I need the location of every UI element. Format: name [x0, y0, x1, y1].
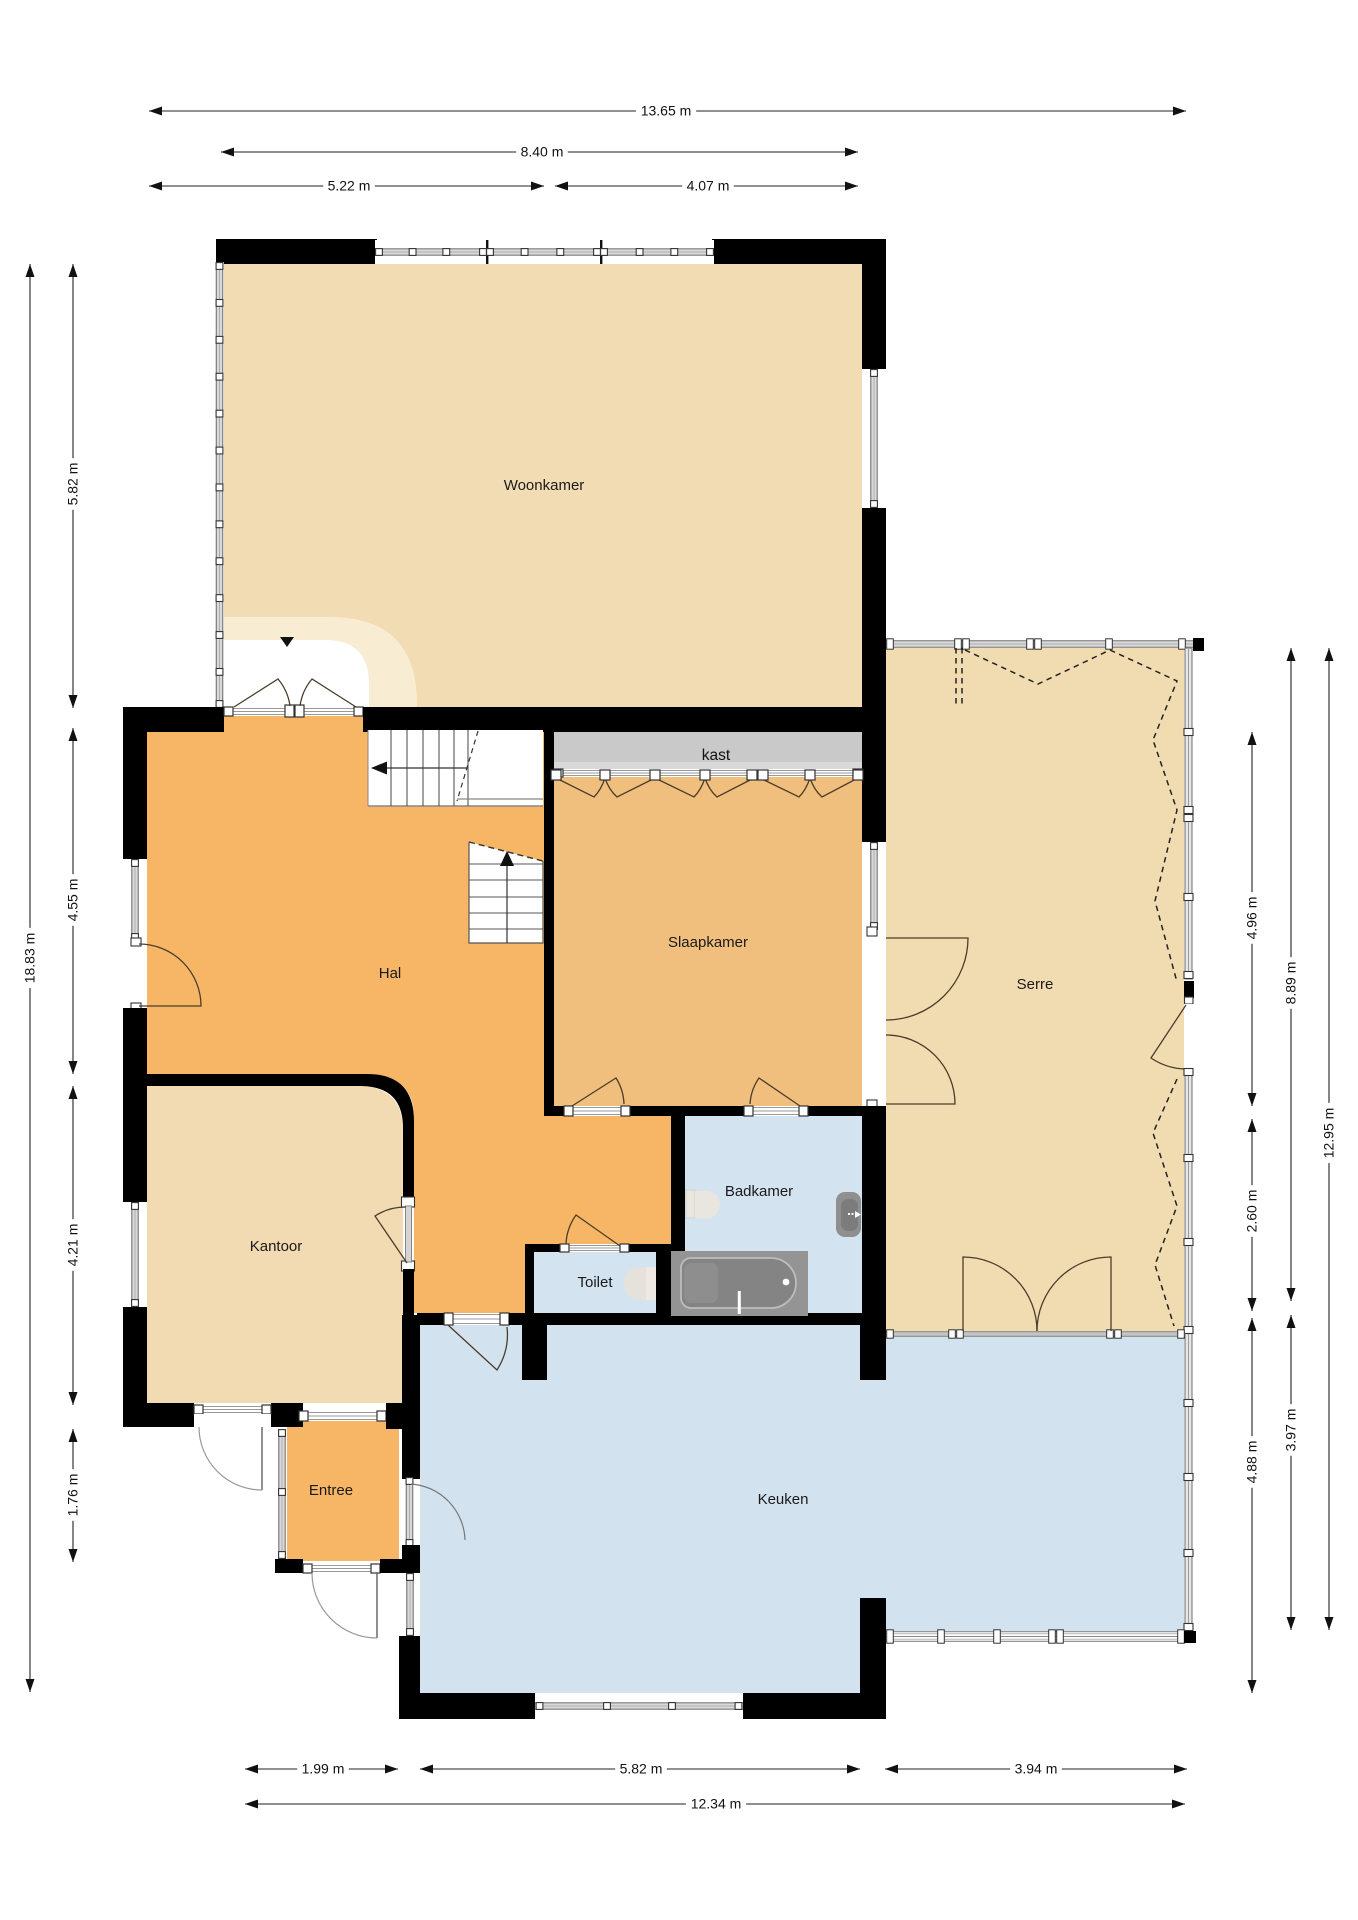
svg-text:18.83 m: 18.83 m — [22, 933, 38, 984]
svg-text:Hal: Hal — [379, 965, 402, 982]
svg-text:12.34 m: 12.34 m — [691, 1796, 742, 1812]
svg-text:Badkamer: Badkamer — [725, 1183, 793, 1200]
svg-text:2.60 m: 2.60 m — [1244, 1190, 1260, 1233]
svg-text:Woonkamer: Woonkamer — [504, 477, 585, 494]
svg-text:5.82 m: 5.82 m — [65, 463, 81, 506]
svg-text:Entree: Entree — [309, 1482, 353, 1499]
svg-text:Toilet: Toilet — [577, 1274, 613, 1291]
svg-text:12.95 m: 12.95 m — [1321, 1108, 1337, 1159]
svg-text:3.94 m: 3.94 m — [1015, 1761, 1058, 1777]
svg-text:1.76 m: 1.76 m — [65, 1474, 81, 1517]
svg-text:4.88 m: 4.88 m — [1244, 1441, 1260, 1484]
svg-text:Slaapkamer: Slaapkamer — [668, 934, 748, 951]
svg-text:4.55 m: 4.55 m — [65, 879, 81, 922]
svg-text:4.21 m: 4.21 m — [65, 1224, 81, 1267]
svg-text:8.89 m: 8.89 m — [1283, 962, 1299, 1005]
svg-text:5.82 m: 5.82 m — [620, 1761, 663, 1777]
svg-text:Serre: Serre — [1017, 976, 1054, 993]
svg-text:kast: kast — [702, 747, 731, 764]
svg-text:3.97 m: 3.97 m — [1283, 1409, 1299, 1452]
svg-text:Keuken: Keuken — [758, 1491, 809, 1508]
svg-text:13.65 m: 13.65 m — [641, 103, 692, 119]
svg-text:Kantoor: Kantoor — [250, 1238, 303, 1255]
svg-text:5.22 m: 5.22 m — [328, 178, 371, 194]
svg-text:4.07 m: 4.07 m — [687, 178, 730, 194]
svg-text:4.96 m: 4.96 m — [1244, 897, 1260, 940]
svg-text:8.40 m: 8.40 m — [521, 144, 564, 160]
svg-text:1.99 m: 1.99 m — [302, 1761, 345, 1777]
